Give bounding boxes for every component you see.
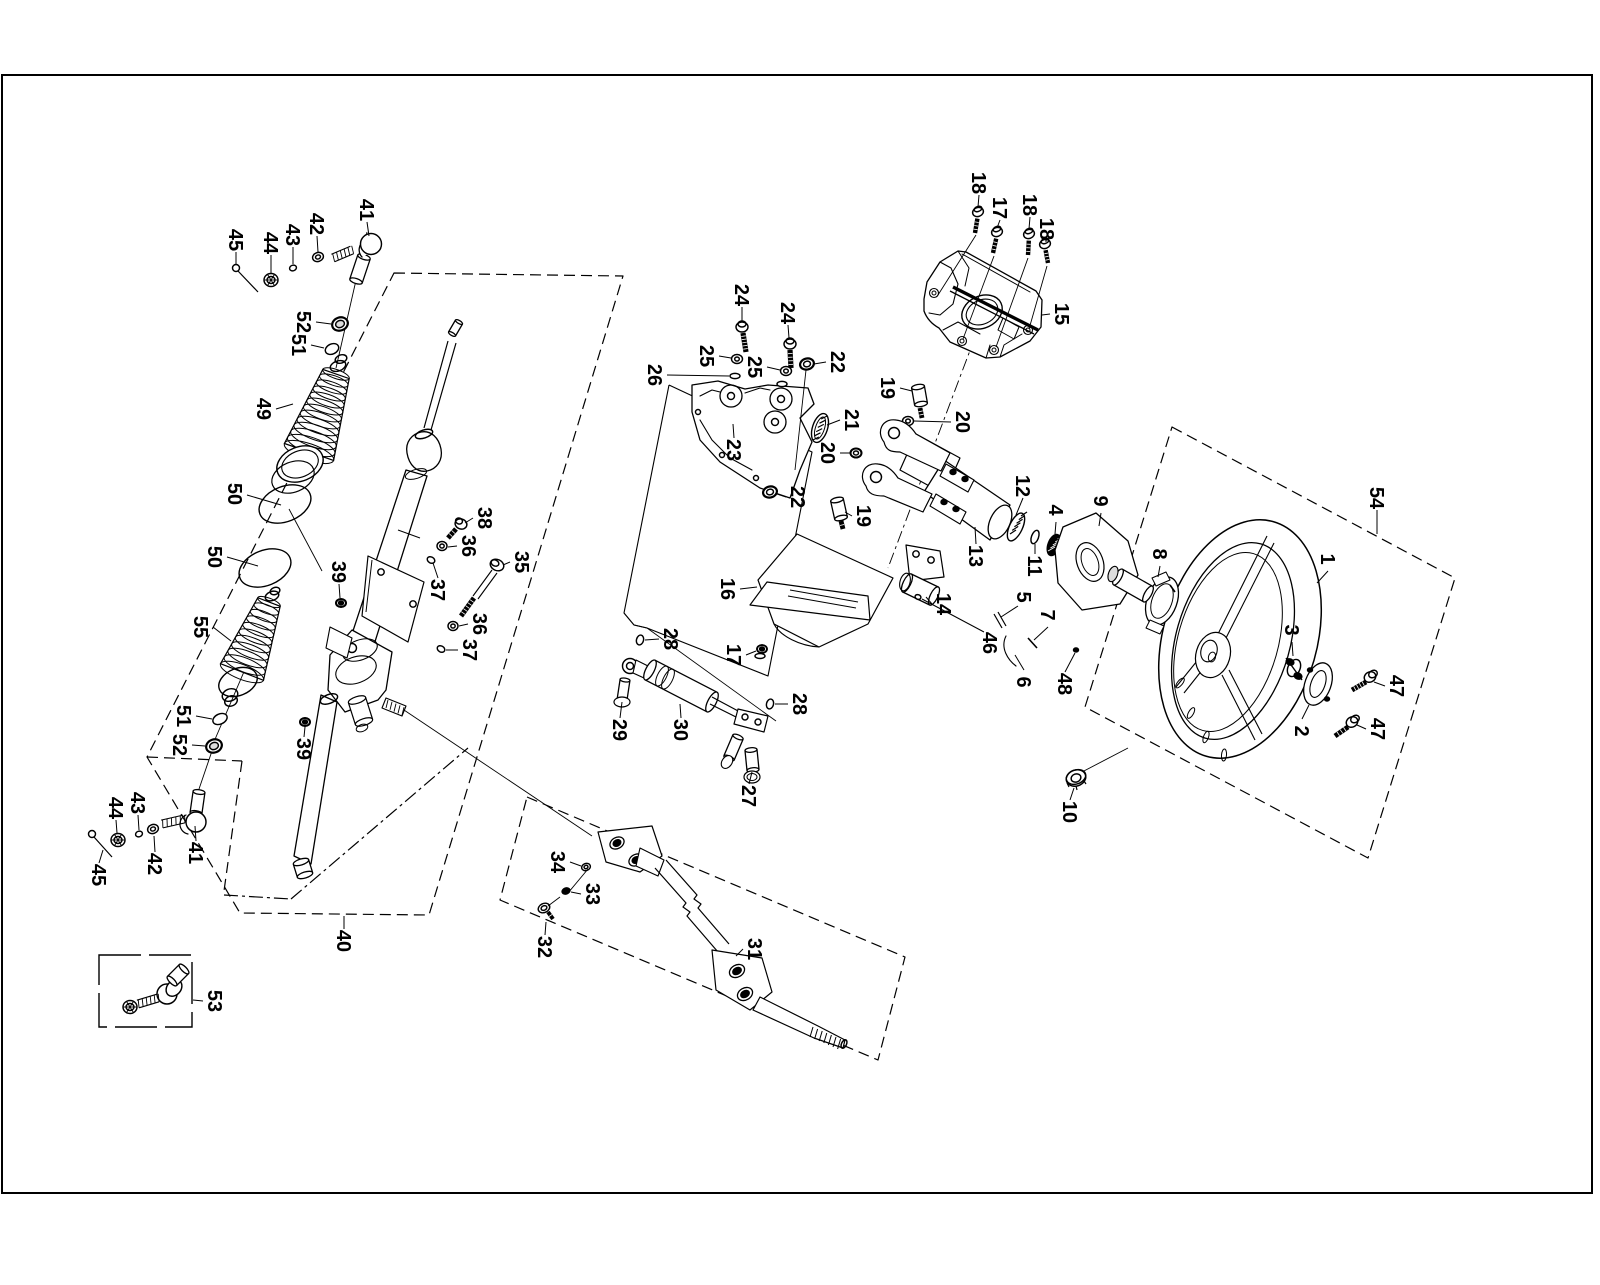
svg-text:20: 20 (816, 442, 838, 464)
svg-text:18: 18 (1035, 218, 1057, 240)
svg-text:24: 24 (776, 302, 798, 325)
svg-text:6: 6 (1012, 676, 1034, 687)
svg-text:9: 9 (1089, 495, 1111, 506)
svg-text:47: 47 (1366, 718, 1388, 740)
svg-text:34: 34 (546, 851, 568, 874)
svg-text:51: 51 (172, 705, 194, 727)
svg-text:30: 30 (669, 719, 691, 741)
svg-text:41: 41 (184, 842, 206, 864)
svg-text:44: 44 (259, 232, 281, 255)
svg-text:31: 31 (743, 938, 765, 960)
svg-text:55: 55 (189, 616, 211, 638)
svg-text:42: 42 (143, 853, 165, 875)
svg-text:17: 17 (722, 644, 744, 666)
svg-text:21: 21 (840, 409, 862, 431)
svg-text:20: 20 (951, 411, 973, 433)
svg-text:52: 52 (168, 734, 190, 756)
svg-text:37: 37 (458, 639, 480, 661)
svg-text:23: 23 (722, 439, 744, 461)
svg-text:33: 33 (581, 883, 603, 905)
svg-text:2: 2 (1290, 725, 1312, 736)
svg-text:47: 47 (1385, 675, 1407, 697)
svg-text:13: 13 (964, 545, 986, 567)
svg-text:46: 46 (978, 632, 1000, 654)
svg-text:36: 36 (468, 613, 490, 635)
svg-text:44: 44 (104, 797, 126, 820)
svg-text:42: 42 (305, 213, 327, 235)
svg-text:24: 24 (730, 284, 752, 307)
svg-text:14: 14 (932, 593, 954, 616)
svg-text:35: 35 (510, 551, 532, 573)
svg-text:25: 25 (743, 356, 765, 378)
svg-text:16: 16 (716, 578, 738, 600)
svg-text:49: 49 (252, 398, 274, 420)
svg-text:28: 28 (659, 628, 681, 650)
svg-text:43: 43 (126, 792, 148, 814)
svg-text:26: 26 (643, 364, 665, 386)
svg-text:29: 29 (608, 719, 630, 741)
svg-text:25: 25 (695, 345, 717, 367)
svg-text:39: 39 (327, 561, 349, 583)
svg-text:48: 48 (1053, 673, 1075, 695)
svg-text:52: 52 (292, 311, 314, 333)
svg-text:17: 17 (988, 197, 1010, 219)
svg-text:10: 10 (1058, 801, 1080, 823)
svg-text:38: 38 (473, 507, 495, 529)
svg-text:19: 19 (852, 505, 874, 527)
svg-text:40: 40 (332, 930, 354, 952)
svg-text:51: 51 (287, 334, 309, 356)
svg-text:43: 43 (281, 224, 303, 246)
svg-text:37: 37 (426, 579, 448, 601)
svg-text:54: 54 (1365, 487, 1387, 510)
svg-text:22: 22 (786, 486, 808, 508)
svg-text:4: 4 (1044, 504, 1066, 516)
svg-text:39: 39 (292, 738, 314, 760)
svg-text:53: 53 (203, 990, 225, 1012)
svg-text:7: 7 (1036, 609, 1058, 620)
svg-text:5: 5 (1012, 591, 1034, 602)
svg-text:27: 27 (737, 785, 759, 807)
svg-text:12: 12 (1011, 475, 1033, 497)
svg-text:8: 8 (1148, 548, 1170, 559)
svg-text:15: 15 (1050, 303, 1072, 325)
svg-text:45: 45 (87, 864, 109, 886)
svg-text:11: 11 (1023, 555, 1045, 576)
svg-text:50: 50 (203, 546, 225, 568)
svg-text:1: 1 (1316, 553, 1338, 564)
svg-text:3: 3 (1280, 624, 1302, 635)
svg-text:36: 36 (457, 535, 479, 557)
svg-text:45: 45 (224, 229, 246, 251)
svg-text:41: 41 (355, 199, 377, 221)
svg-text:19: 19 (876, 377, 898, 399)
svg-text:28: 28 (788, 693, 810, 715)
svg-text:18: 18 (967, 172, 989, 194)
svg-text:22: 22 (826, 351, 848, 373)
svg-text:18: 18 (1018, 194, 1040, 216)
svg-text:32: 32 (533, 936, 555, 958)
svg-text:50: 50 (223, 483, 245, 505)
